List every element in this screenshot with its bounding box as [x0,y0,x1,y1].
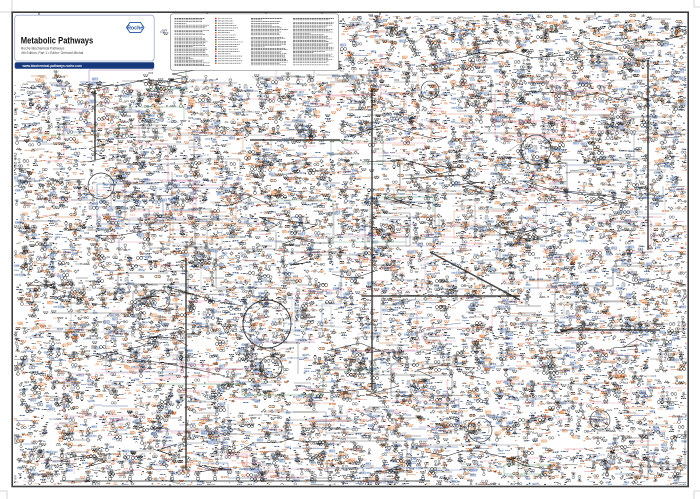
svg-text:Roche: Roche [127,25,143,31]
svg-text:Metabolic Pathways: Metabolic Pathways [21,36,94,46]
svg-text:Roche Biochemical Pathways: Roche Biochemical Pathways [21,47,65,51]
svg-text:www.biochemical-pathways.roche: www.biochemical-pathways.roche.com [22,64,82,68]
svg-text:4th Edition, Part 1 • Editor: 4th Edition, Part 1 • Editor: Gerhard Mi… [21,51,83,55]
